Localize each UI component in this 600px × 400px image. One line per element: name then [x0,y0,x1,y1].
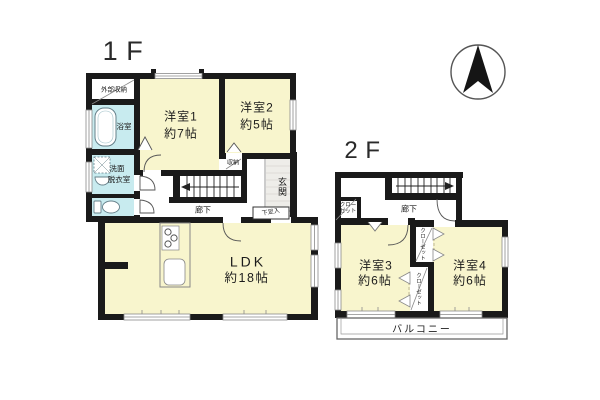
label-western1-size: 約7帖 [164,127,198,140]
label-western3-size: 約6帖 [358,274,392,287]
washroom-door [140,176,155,190]
floor1-title: 1F [103,37,152,67]
label-western4-size: 約6帖 [453,274,487,287]
label-western2-size: 約5帖 [240,118,274,131]
label-balcony: バルコニー [392,325,452,336]
room-ldk-floor [104,223,311,314]
kitchen-counter-icon [160,223,190,287]
room-western2-floor [225,79,290,153]
label-entrance: 玄関 [276,177,286,197]
label-closet-upper: クローゼット [419,228,425,261]
western4-door [437,199,455,221]
label-storage: 収納 [227,161,239,168]
label-western1-name: 洋室1 [164,110,198,123]
stairs-up-arrow-2f [445,182,454,190]
label-exterior-storage: 外部収納 [101,86,127,93]
label-western3-name: 洋室3 [359,259,393,272]
compass-north-icon [451,45,505,99]
label-hallway-2f: 廊下 [401,206,417,215]
label-washroom-2: 脱衣室 [108,176,131,184]
stairs-1f [181,176,239,197]
label-hallway-1f: 廊下 [195,207,211,216]
washing-machine-icon [94,157,110,173]
label-western2-name: 洋室2 [240,101,274,114]
label-bathroom: 浴室 [117,123,132,131]
floor2-title: 2F [344,138,387,164]
stairs-up-arrow-1f [181,183,190,191]
label-ldk-size: 約18帖 [225,272,270,286]
label-washroom-1: 洗面 [110,165,125,173]
label-closet-lower: クローゼット [415,273,421,306]
kitchen-sink-icon [164,259,185,285]
toilet-door [140,200,154,213]
floorplan-canvas: 1F 2F 洋室1 約7帖 洋室2 約5帖 LDK 約18帖 浴室 洗面 脱衣室… [0,0,600,400]
bathtub-icon [95,108,116,146]
toilet-icon [94,201,120,213]
stairs-2f [396,178,454,193]
label-ldk-name: LDK [230,254,266,269]
label-closet-hall: クローゼット [339,203,358,216]
floorplan-drawing [0,0,600,400]
label-western4-name: 洋室4 [453,259,487,272]
